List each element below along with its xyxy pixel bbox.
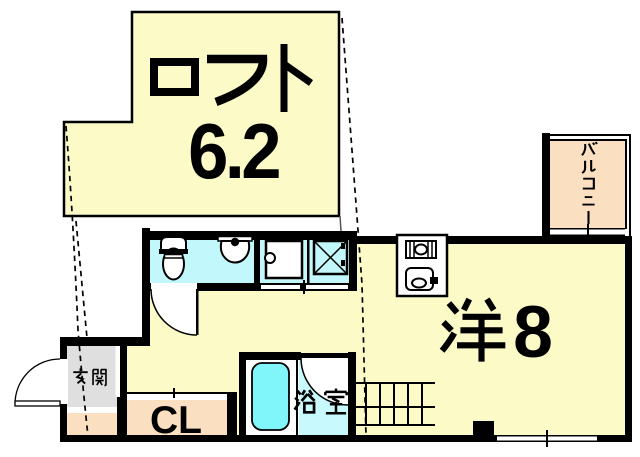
svg-text:CL: CL bbox=[150, 399, 202, 442]
svg-text:6.2: 6.2 bbox=[188, 108, 279, 195]
svg-text:8: 8 bbox=[513, 292, 553, 373]
